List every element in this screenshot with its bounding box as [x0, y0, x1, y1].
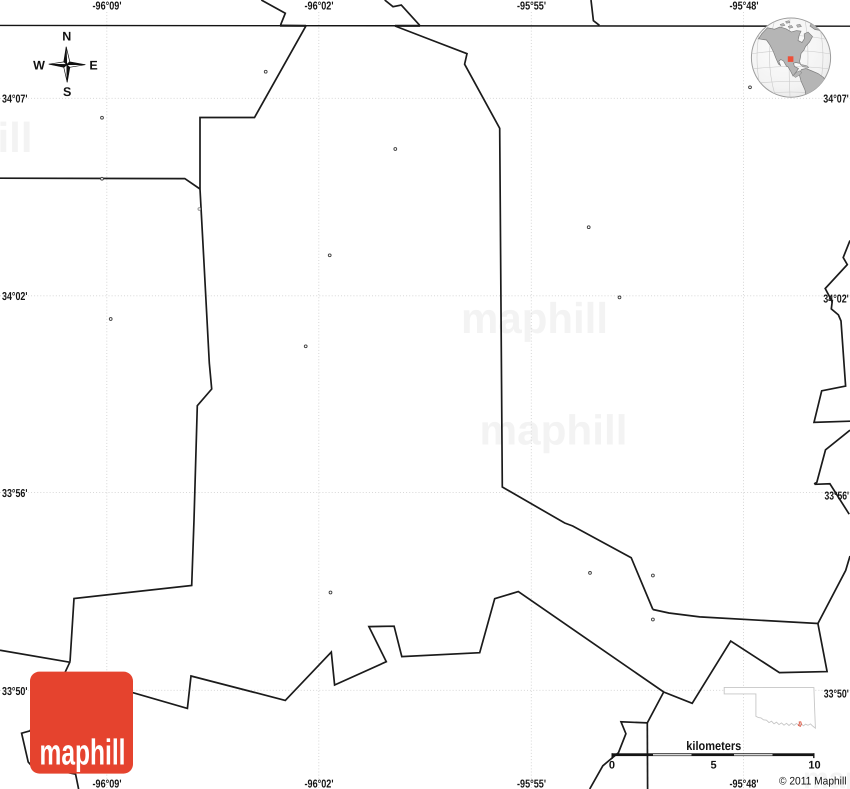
svg-text:-96°09': -96°09': [93, 1, 122, 13]
svg-text:34°07': 34°07': [823, 94, 849, 106]
svg-text:kilometers: kilometers: [686, 739, 741, 753]
svg-text:-96°02': -96°02': [305, 778, 334, 789]
svg-text:34°07': 34°07': [2, 93, 28, 105]
svg-text:5: 5: [710, 760, 716, 772]
svg-text:E: E: [89, 59, 97, 73]
svg-text:33°50': 33°50': [2, 686, 28, 698]
svg-text:33°56': 33°56': [825, 491, 850, 503]
svg-text:maphill: maphill: [40, 732, 126, 773]
svg-text:0: 0: [609, 760, 615, 772]
svg-text:maphill: maphill: [0, 114, 33, 161]
svg-text:33°50': 33°50': [824, 688, 849, 700]
svg-text:33°56': 33°56': [2, 488, 28, 500]
svg-text:W: W: [33, 58, 45, 72]
svg-text:maphill: maphill: [461, 295, 608, 343]
svg-text:-95°55': -95°55': [517, 1, 546, 13]
svg-text:-95°55': -95°55': [517, 778, 546, 789]
svg-text:S: S: [63, 85, 71, 99]
svg-text:-95°48': -95°48': [730, 778, 759, 789]
svg-text:N: N: [62, 30, 71, 44]
svg-text:© 2011 Maphill: © 2011 Maphill: [779, 775, 847, 787]
svg-text:34°02': 34°02': [2, 291, 28, 303]
svg-text:34°02': 34°02': [823, 294, 849, 306]
svg-text:-95°48': -95°48': [730, 1, 759, 13]
svg-text:-96°02': -96°02': [305, 1, 334, 13]
svg-text:10: 10: [808, 760, 820, 772]
svg-text:-96°09': -96°09': [93, 778, 122, 789]
